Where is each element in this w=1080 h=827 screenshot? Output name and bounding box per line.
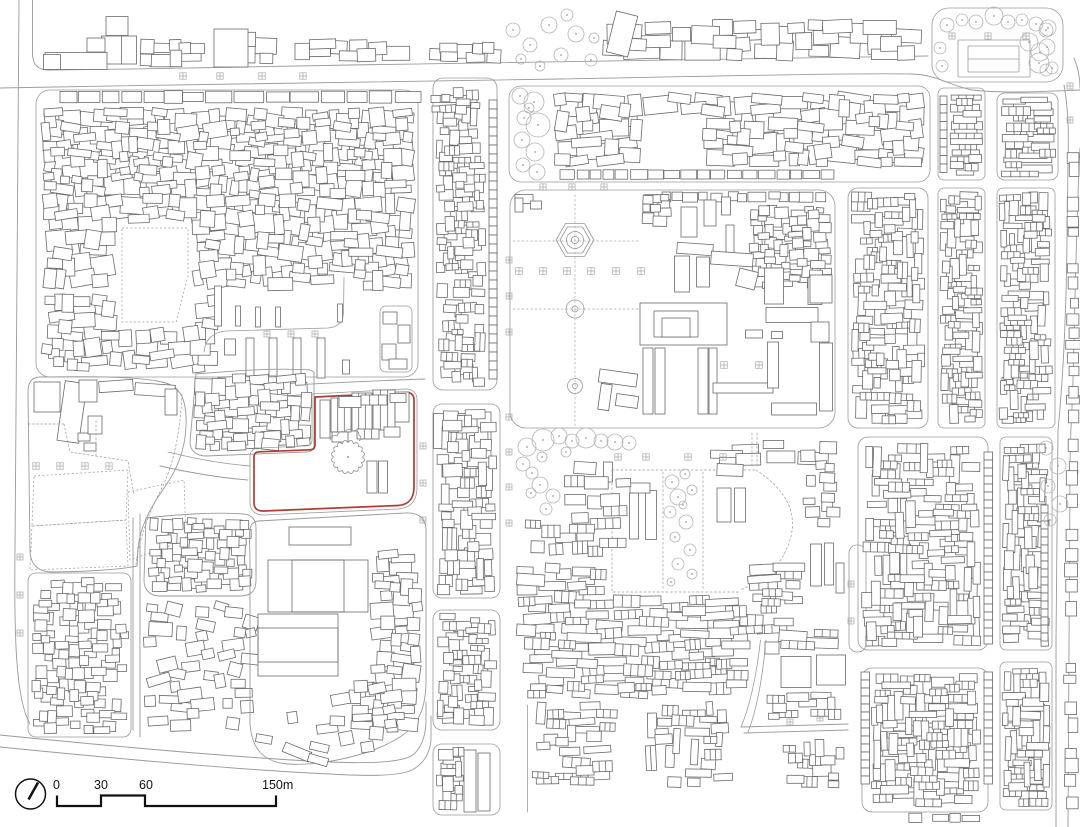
svg-text:0: 0 <box>53 778 60 792</box>
svg-text:150m: 150m <box>262 778 293 792</box>
svg-text:60: 60 <box>139 778 153 792</box>
svg-text:30: 30 <box>94 778 108 792</box>
